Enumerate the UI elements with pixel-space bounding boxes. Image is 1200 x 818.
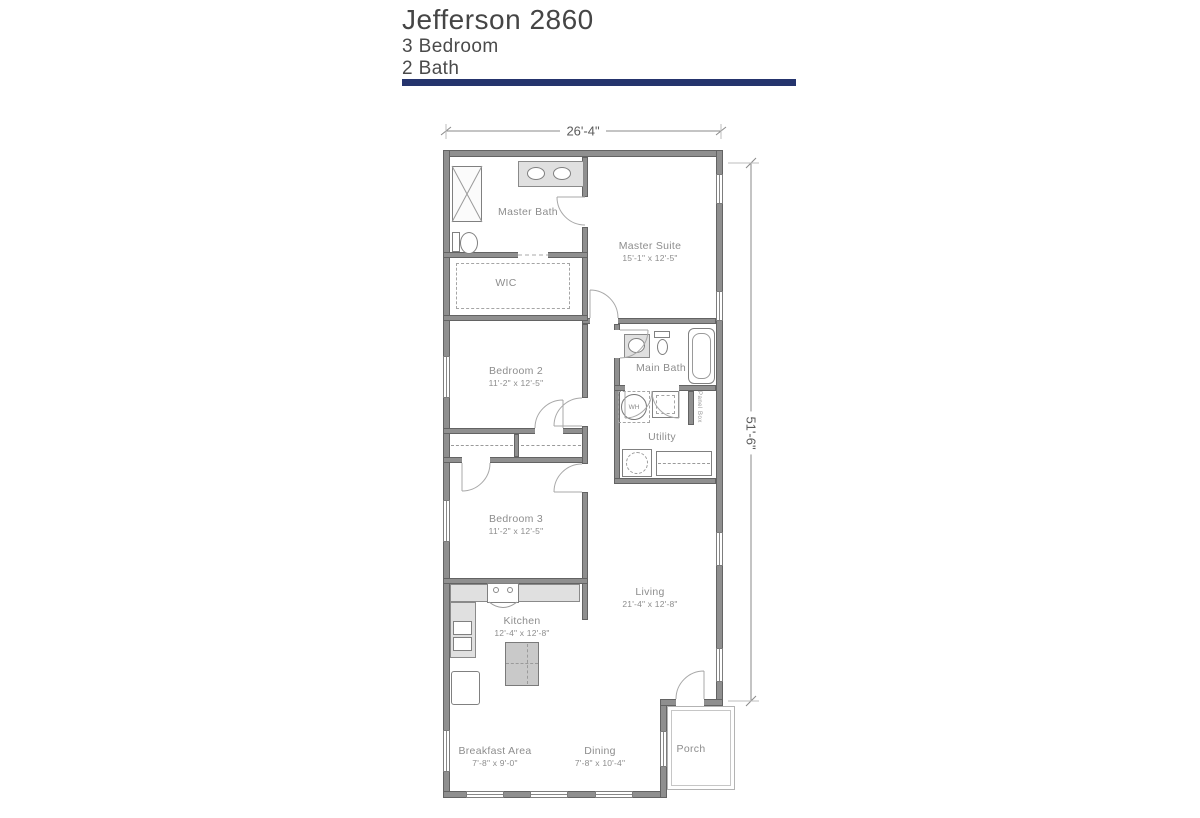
plan-bedrooms: 3 Bedroom bbox=[402, 35, 499, 58]
wall-closet-divider bbox=[514, 434, 519, 457]
plan-title: Jefferson 2860 bbox=[402, 4, 594, 36]
wall-bedroom2-east bbox=[582, 324, 588, 398]
room-dims: 12'-4" x 12'-8" bbox=[494, 628, 549, 638]
room-label-living: Living 21'-4" x 12'-8" bbox=[622, 586, 677, 609]
wall-closet-east bbox=[582, 426, 588, 464]
vanity-sink-2 bbox=[553, 167, 571, 180]
room-dims: 7'-8" x 10'-4" bbox=[575, 758, 625, 768]
utility-counter-shelf bbox=[658, 463, 710, 465]
wall-exterior-top bbox=[443, 150, 723, 157]
door-gap-master-bath bbox=[582, 197, 588, 227]
water-heater-label: WH bbox=[622, 395, 646, 419]
room-label-dining: Dining 7'-8" x 10'-4" bbox=[575, 745, 625, 768]
floor-plan-page: Jefferson 2860 3 Bedroom 2 Bath bbox=[0, 0, 1200, 818]
room-dims: 11'-2" x 12'-5" bbox=[489, 526, 544, 536]
window-living-right-2 bbox=[716, 648, 723, 682]
door-gap-bedroom2-closet bbox=[535, 428, 563, 434]
kitchen-sink-basin-2 bbox=[453, 637, 472, 651]
accent-divider-bar bbox=[402, 79, 796, 86]
vanity-sink-1 bbox=[527, 167, 545, 180]
range bbox=[487, 583, 519, 603]
master-toilet-bowl bbox=[460, 232, 478, 254]
room-name: Living bbox=[622, 586, 677, 599]
window-dining-east bbox=[660, 731, 667, 767]
room-name: Bedroom 3 bbox=[489, 513, 544, 526]
mainbath-toilet-tank bbox=[654, 331, 670, 338]
window-suite-right-1 bbox=[716, 174, 723, 204]
window-bottom-1 bbox=[466, 791, 504, 798]
room-dims: 15'-1" x 12'-5" bbox=[619, 253, 682, 263]
dryer-drum bbox=[626, 452, 648, 474]
room-name: Breakfast Area bbox=[458, 745, 531, 758]
mainbath-sink bbox=[628, 338, 645, 353]
closet-rod-right bbox=[521, 445, 581, 447]
room-name: Utility bbox=[648, 431, 676, 444]
dim-label-width: 26'-4" bbox=[561, 124, 604, 139]
room-label-master-bath: Master Bath bbox=[498, 206, 558, 219]
room-name: Bedroom 2 bbox=[489, 365, 544, 378]
mainbath-toilet-bowl bbox=[657, 339, 668, 355]
room-label-kitchen: Kitchen 12'-4" x 12'-8" bbox=[494, 615, 549, 638]
room-label-porch: Porch bbox=[677, 743, 706, 756]
window-bottom-2 bbox=[530, 791, 568, 798]
door-gap-bedroom3-closet bbox=[462, 457, 490, 463]
door-swing-master-suite bbox=[590, 290, 618, 318]
shower bbox=[452, 166, 482, 222]
window-bedroom2-left bbox=[443, 356, 450, 398]
door-gap-wic bbox=[518, 252, 548, 258]
window-bottom-3 bbox=[595, 791, 633, 798]
room-dims: 7'-8" x 9'-0" bbox=[458, 758, 531, 768]
door-swing-bedroom3 bbox=[554, 464, 582, 492]
room-label-utility: Utility bbox=[648, 431, 676, 444]
panel-box-label: Panel Box bbox=[696, 391, 702, 433]
room-name: Dining bbox=[575, 745, 625, 758]
room-name: Main Bath bbox=[636, 362, 686, 375]
door-gap-porch bbox=[676, 699, 704, 706]
island-seam-v bbox=[527, 644, 529, 684]
room-label-bedroom3: Bedroom 3 11'-2" x 12'-5" bbox=[489, 513, 544, 536]
room-label-master-suite: Master Suite 15'-1" x 12'-5" bbox=[619, 240, 682, 263]
door-swing-bedroom2-closet bbox=[535, 400, 563, 428]
wall-wic-suite bbox=[582, 227, 588, 324]
room-dims: 11'-2" x 12'-5" bbox=[489, 378, 544, 388]
wall-wic-bottom bbox=[443, 315, 588, 321]
wall-bedroom3-kitchen-east bbox=[582, 492, 588, 620]
room-dims: 21'-4" x 12'-8" bbox=[622, 599, 677, 609]
room-label-breakfast: Breakfast Area 7'-8" x 9'-0" bbox=[458, 745, 531, 768]
door-swing-bedroom2 bbox=[554, 398, 582, 426]
door-swing-master-bath bbox=[557, 197, 585, 225]
washer-drum bbox=[656, 395, 675, 414]
wall-exterior-left bbox=[443, 150, 450, 798]
island-seam-h bbox=[506, 663, 538, 665]
water-heater: WH bbox=[621, 394, 647, 420]
door-swing-bedroom3-closet bbox=[462, 463, 490, 491]
bathtub-inner bbox=[692, 333, 711, 379]
door-gap-master-suite bbox=[590, 318, 618, 324]
room-name: Porch bbox=[677, 743, 706, 756]
room-name: WIC bbox=[495, 277, 516, 290]
room-label-bedroom2: Bedroom 2 11'-2" x 12'-5" bbox=[489, 365, 544, 388]
wall-panel-partition bbox=[688, 391, 694, 425]
door-swing-porch bbox=[676, 671, 704, 699]
wall-utility-bottom bbox=[614, 478, 716, 484]
dim-label-depth: 51'-6" bbox=[744, 411, 759, 454]
wall-exterior-right bbox=[716, 150, 723, 706]
master-toilet-tank bbox=[452, 232, 460, 252]
window-breakfast-left bbox=[443, 730, 450, 772]
closet-rod-left bbox=[451, 445, 513, 447]
door-gap-main-bath bbox=[614, 330, 620, 358]
door-gap-bedroom3 bbox=[582, 464, 588, 492]
room-name: Master Suite bbox=[619, 240, 682, 253]
room-name: Kitchen bbox=[494, 615, 549, 628]
door-gap-bedroom2 bbox=[582, 398, 588, 426]
room-label-wic: WIC bbox=[495, 277, 516, 290]
refrigerator bbox=[451, 671, 480, 705]
window-living-right-1 bbox=[716, 532, 723, 566]
kitchen-sink-basin-1 bbox=[453, 621, 472, 635]
window-bedroom3-left bbox=[443, 500, 450, 542]
room-label-main-bath: Main Bath bbox=[636, 362, 686, 375]
window-suite-right-2 bbox=[716, 291, 723, 321]
room-name: Master Bath bbox=[498, 206, 558, 219]
plan-baths: 2 Bath bbox=[402, 57, 459, 80]
